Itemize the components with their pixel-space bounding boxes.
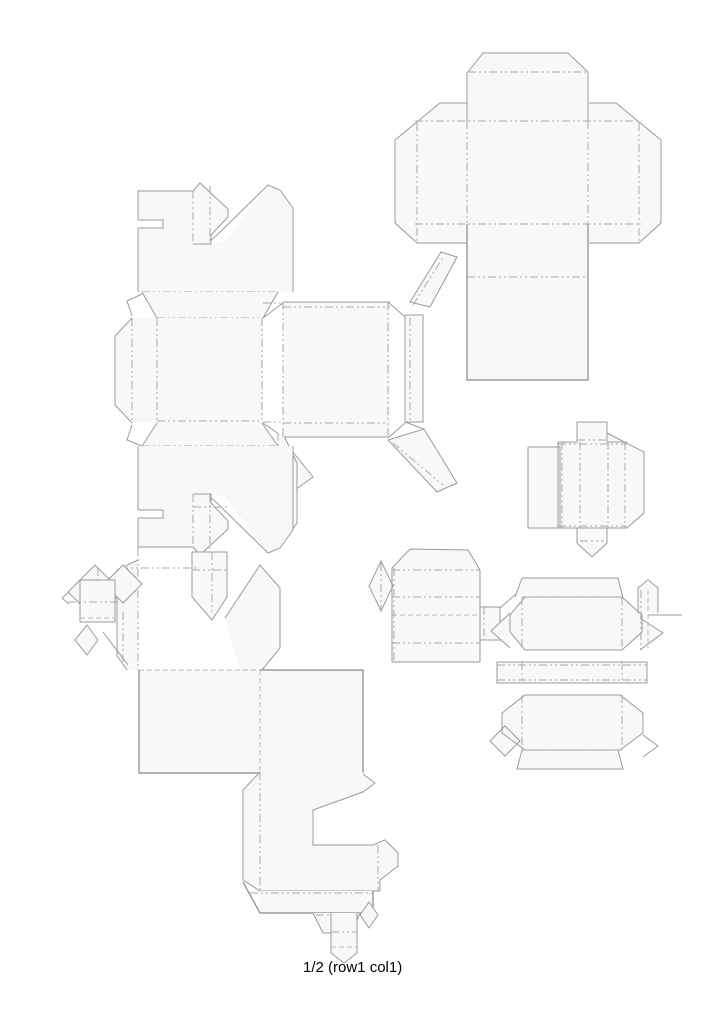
fold-band-top: [142, 292, 278, 318]
cross-box-dieline: [395, 53, 661, 380]
dieline-drawing: [0, 0, 724, 1024]
large-squares-dieline: [139, 670, 363, 773]
octagon-stack-dieline: [490, 578, 682, 769]
crown-bottom-extension: [117, 548, 280, 670]
fold-band-bottom: [142, 423, 278, 446]
small-box-dieline: [528, 422, 644, 557]
crown-bottom-dieline: [138, 446, 293, 555]
crown-top-dieline: [138, 183, 293, 292]
rect-panel-dieline: [283, 252, 457, 492]
sheet-caption: 1/2 (row1 col1): [303, 959, 402, 976]
dieline-sheet: 1/2 (row1 col1): [0, 0, 724, 1024]
c-shape-dieline: [243, 772, 398, 891]
